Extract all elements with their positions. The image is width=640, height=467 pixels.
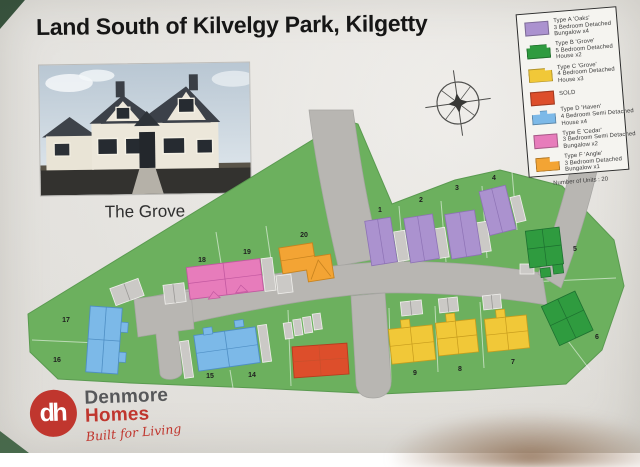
denmore-homes-logo: dh Denmore Homes Built for Living [29,385,182,443]
garage-pair [163,283,186,304]
legend-swatch-type-d [531,110,556,126]
garage-pair [276,274,293,294]
plot-number-9: 9 [413,370,417,377]
plot-number-14: 14 [248,372,256,379]
plot-8-porch [446,313,456,322]
logo-dh-monogram-icon: dh [29,389,78,438]
plot-number-15: 15 [206,373,214,380]
plot-15-porch [203,327,213,335]
plot-7-porch [496,309,506,318]
plot-9-porch [400,319,410,328]
plot-number-2: 2 [419,197,423,204]
legend-swatch-type-a [524,21,549,37]
compass-rose-icon [421,66,496,141]
parking-bay [293,319,303,336]
plot-number-19: 19 [243,249,251,256]
plot-16-porch [118,352,126,362]
legend-swatch-type-b [526,44,551,60]
plot-number-16: 16 [53,357,61,364]
plot-number-7: 7 [511,359,515,366]
parking-bay [303,316,313,333]
legend-row-type-c: Type C 'Grove' 4 Bedroom Detached House … [528,60,616,87]
legend-swatch-type-f [535,156,560,172]
plot-number-4: 4 [492,175,496,182]
plot-number-18: 18 [198,257,206,264]
legend-row-type-e: Type E 'Cedar' 3 Bedroom Semi Detached B… [533,126,621,153]
plot-number-3: 3 [455,185,459,192]
road-south-spur [351,293,391,398]
legend-row-type-d: Type D 'Haven' 4 Bedroom Semi Detached H… [531,103,619,130]
plot-5-annex [540,268,551,278]
plot-number-17: 17 [62,317,70,324]
legend-swatch-type-c [528,67,553,83]
legend-row-type-b: Type B 'Grove' 5 Bedroom Detached House … [526,37,614,64]
plot-14-porch [234,319,244,327]
plot-number-20: 20 [300,232,308,239]
plot-number-5: 5 [573,246,577,253]
legend-label-sold: SOLD [559,90,576,98]
plot-5-annex [553,264,564,274]
plot-number-1: 1 [378,207,382,214]
plot-number-6: 6 [595,334,599,341]
legend: Type A 'Oaks' 3 Bedroom Detached Bungalo… [516,6,630,178]
plot-number-8: 8 [458,366,462,373]
parking-bay [283,322,293,339]
photo-artifact-thumb [382,409,640,467]
legend-swatch-sold [530,90,555,106]
legend-swatch-type-e [533,133,558,149]
plot-17-porch [121,322,129,332]
legend-row-type-a: Type A 'Oaks' 3 Bedroom Detached Bungalo… [524,14,612,41]
parking-bay [312,313,322,330]
